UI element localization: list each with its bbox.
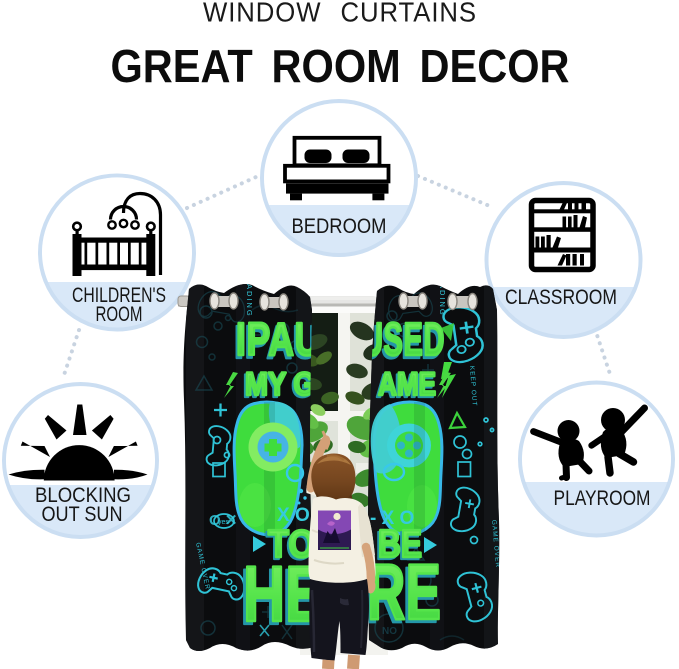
svg-text:AME: AME [378,366,436,402]
svg-text:GREAT ROOM DECOR: GREAT ROOM DECOR [111,40,570,92]
svg-text:MY G: MY G [245,366,315,402]
svg-text:CLASSROOM: CLASSROOM [505,286,617,309]
svg-text:PLAYROOM: PLAYROOM [554,487,651,510]
svg-text:WINDOW CURTAINS: WINDOW CURTAINS [203,0,477,28]
svg-text:RE: RE [367,547,441,636]
svg-text:OUT SUN: OUT SUN [42,503,123,526]
svg-text:BEDROOM: BEDROOM [292,215,387,238]
svg-text:USED: USED [362,313,445,365]
svg-text:ROOM: ROOM [96,303,143,326]
svg-text:IPAU: IPAU [236,313,321,365]
svg-text:O ✕: O ✕ [209,512,237,529]
